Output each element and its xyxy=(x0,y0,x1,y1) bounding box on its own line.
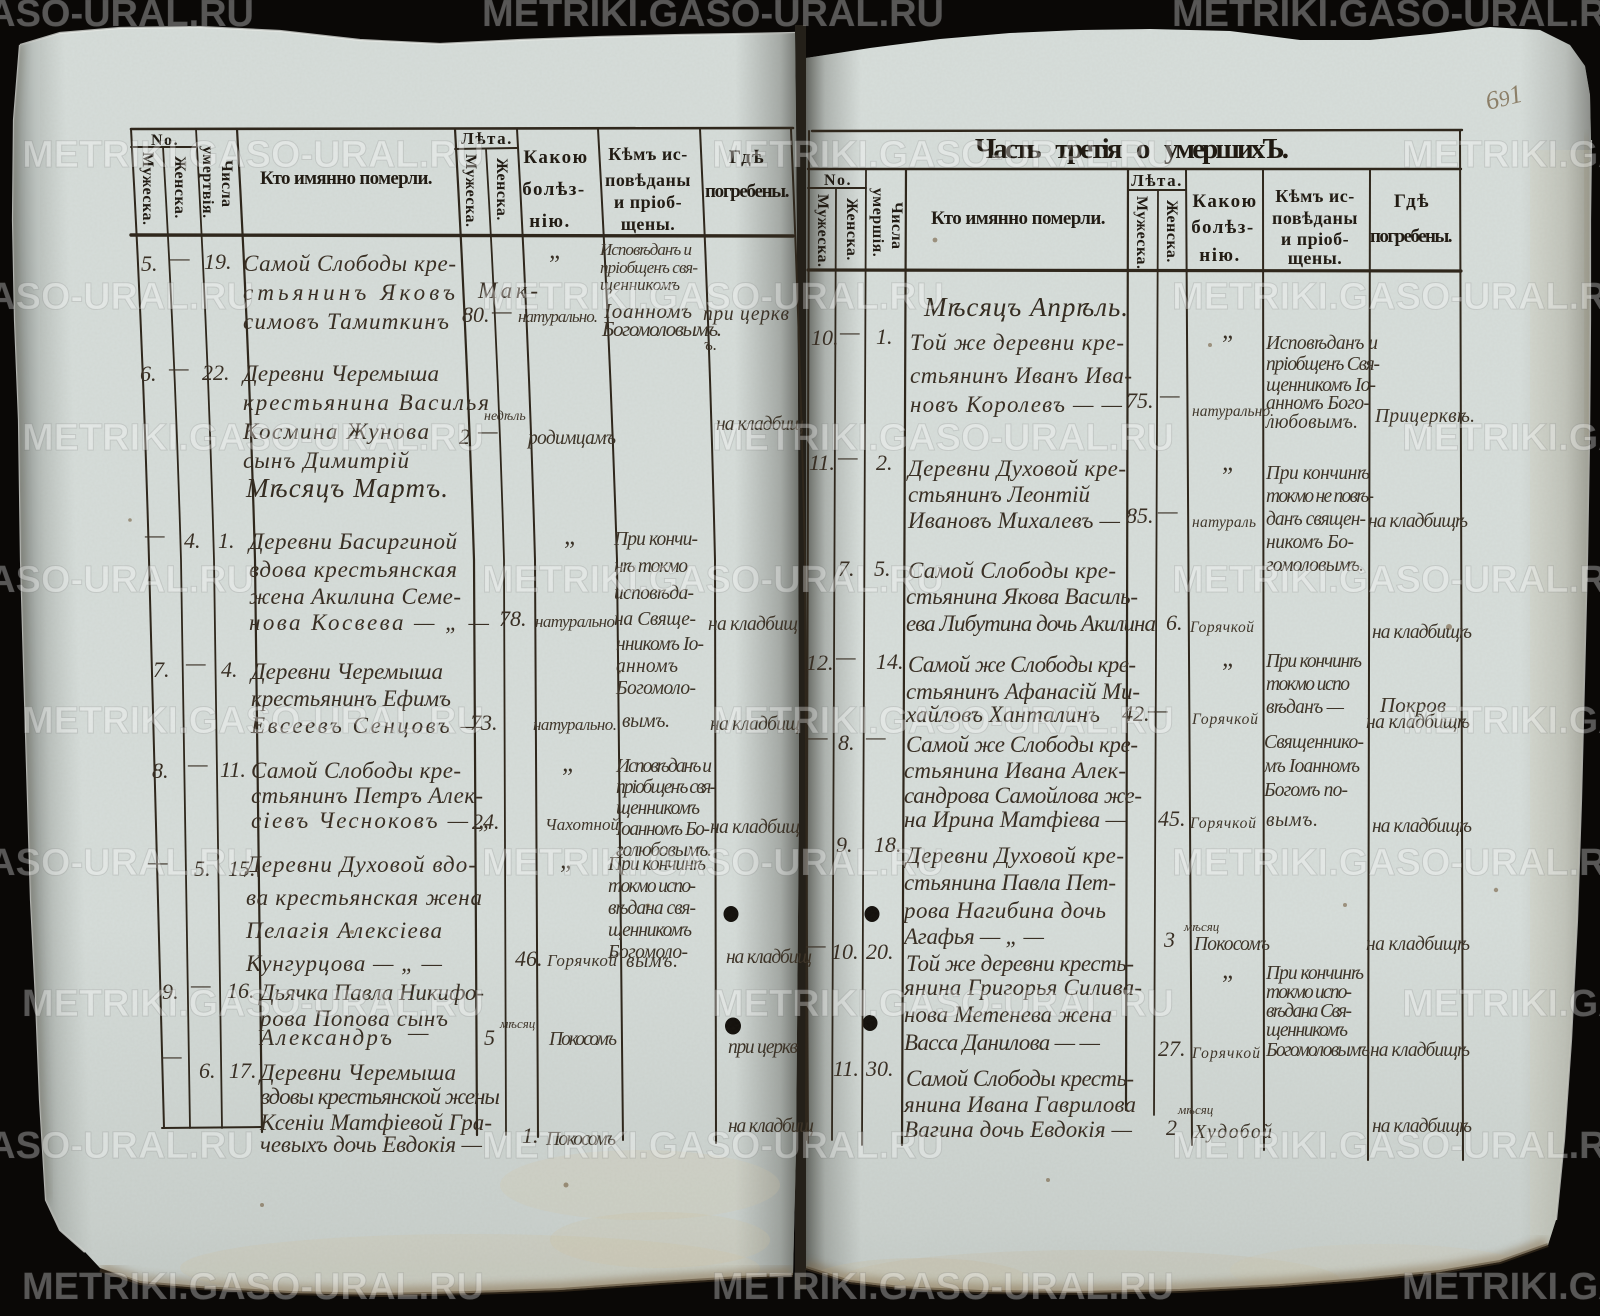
svg-text:вѣданъ —: вѣданъ — xyxy=(1266,697,1345,718)
svg-text:6.: 6. xyxy=(140,361,157,386)
svg-text:—: — xyxy=(187,751,208,776)
svg-text:Числа: Числа xyxy=(888,202,905,250)
svg-text:19.: 19. xyxy=(204,249,232,274)
svg-text:вдовы крестьянской жены: вдовы крестьянской жены xyxy=(260,1084,500,1109)
svg-text:5.: 5. xyxy=(141,251,158,276)
svg-text:46.: 46. xyxy=(515,946,543,971)
svg-text:METRIKI.GASO-URAL.RU: METRIKI.GASO-URAL.RU xyxy=(1172,276,1600,318)
svg-text:—: — xyxy=(1159,382,1180,407)
svg-text:чевыхъ дочь Евдокія —: чевыхъ дочь Евдокія — xyxy=(260,1132,483,1157)
svg-text:на кладбищ: на кладбищ xyxy=(710,817,800,838)
svg-text:при церкв: при церкв xyxy=(728,1037,799,1058)
svg-text:Священнико-: Священнико- xyxy=(1264,732,1364,753)
svg-text:нникомъ Іо-: нникомъ Іо- xyxy=(616,634,704,655)
svg-text:на Ирина Матфіева —: на Ирина Матфіева — xyxy=(904,807,1127,832)
svg-text:повѣданы: повѣданы xyxy=(1272,208,1358,228)
svg-text:Мѣсяцъ Апрѣль.: Мѣсяцъ Апрѣль. xyxy=(923,292,1128,322)
svg-text:78.: 78. xyxy=(499,606,527,631)
svg-text:1.: 1. xyxy=(218,528,235,553)
svg-text:METRIKI.GASO-URAL.RU: METRIKI.GASO-URAL.RU xyxy=(482,1125,944,1167)
svg-text:4.: 4. xyxy=(221,657,238,682)
svg-text:22.: 22. xyxy=(202,360,230,385)
svg-text:—: — xyxy=(1157,498,1178,523)
svg-text:натурально: натурально xyxy=(535,612,615,631)
svg-text:METRIKI.GASO-URAL.RU: METRIKI.GASO-URAL.RU xyxy=(0,276,254,318)
svg-text:Кунгурцова — „ —: Кунгурцова — „ — xyxy=(245,951,443,976)
svg-text:вдова крестьянская: вдова крестьянская xyxy=(249,557,457,582)
svg-text:5: 5 xyxy=(484,1025,495,1050)
svg-text:Женска.: Женска. xyxy=(843,198,860,261)
svg-text:METRIKI.GASO-URAL.RU: METRIKI.GASO-URAL.RU xyxy=(0,1125,254,1167)
svg-text:—: — xyxy=(161,1043,182,1068)
svg-text:„: „ xyxy=(1222,645,1236,672)
svg-text:6.: 6. xyxy=(199,1058,216,1083)
svg-text:родимцамъ: родимцамъ xyxy=(526,428,616,449)
svg-text:погребены.: погребены. xyxy=(705,181,791,202)
svg-text:Исповѣданъ и: Исповѣданъ и xyxy=(615,756,712,777)
svg-text:Какою: Какою xyxy=(1192,191,1257,212)
svg-text:Мужеска.: Мужеска. xyxy=(814,194,831,267)
svg-text:повѣданы: повѣданы xyxy=(605,170,691,190)
svg-text:вѣдана Свя-: вѣдана Свя- xyxy=(1266,1001,1352,1022)
svg-text:Покосомъ: Покосомъ xyxy=(548,1029,617,1050)
svg-text:вѣдана свя-: вѣдана свя- xyxy=(608,898,696,919)
svg-text:стьянинъ Иванъ Ива-: стьянинъ Иванъ Ива- xyxy=(910,363,1132,388)
svg-text:на кладбищ: на кладбищ xyxy=(708,614,798,635)
svg-text:METRIKI.GASO-URAL.RU: METRIKI.GASO-URAL.RU xyxy=(0,842,254,884)
svg-text:Деревни Черемыша: Деревни Черемыша xyxy=(258,1060,456,1085)
svg-text:METRIKI.GASO-URAL.RU: METRIKI.GASO-URAL.RU xyxy=(0,0,254,35)
svg-text:METRIKI.GASO-URAL.RU: METRIKI.GASO-URAL.RU xyxy=(1402,417,1600,459)
svg-text:—: — xyxy=(805,932,826,957)
svg-text:METRIKI.GASO-URAL.RU: METRIKI.GASO-URAL.RU xyxy=(22,700,484,742)
svg-text:пріобщенъ Свя-: пріобщенъ Свя- xyxy=(1266,354,1380,375)
svg-text:нію.: нію. xyxy=(529,211,571,232)
svg-text:Кто имянно померли.: Кто имянно померли. xyxy=(931,208,1107,229)
svg-text:METRIKI.GASO-URAL.RU: METRIKI.GASO-URAL.RU xyxy=(22,417,484,459)
svg-text:METRIKI.GASO-URAL.RU: METRIKI.GASO-URAL.RU xyxy=(712,134,1174,176)
svg-text:никомъ Бо-: никомъ Бо- xyxy=(1266,532,1354,553)
svg-text:6.: 6. xyxy=(1166,610,1183,635)
svg-text:—: — xyxy=(169,245,190,270)
svg-text:1.: 1. xyxy=(876,324,893,349)
svg-text:стьянинъ Петръ Алек-: стьянинъ Петръ Алек- xyxy=(251,783,483,808)
svg-text:анномъ Бого-: анномъ Бого- xyxy=(1266,393,1370,414)
svg-text:METRIKI.GASO-URAL.RU: METRIKI.GASO-URAL.RU xyxy=(482,276,944,318)
svg-text:METRIKI.GASO-URAL.RU: METRIKI.GASO-URAL.RU xyxy=(1172,559,1600,601)
svg-text:27.: 27. xyxy=(1158,1036,1186,1061)
svg-text:—: — xyxy=(144,522,165,547)
svg-text:натураль: натураль xyxy=(1192,514,1256,531)
svg-text:мѣсяц: мѣсяц xyxy=(499,1016,536,1031)
svg-text:на кладбищѣ: на кладбищѣ xyxy=(1372,622,1472,643)
svg-text:„: „ xyxy=(1222,957,1236,984)
svg-text:Іоанномъ Бо-: Іоанномъ Бо- xyxy=(615,819,710,840)
svg-text:Женска.: Женска. xyxy=(1163,200,1180,263)
svg-text:Той же деревни кресть-: Той же деревни кресть- xyxy=(906,951,1134,976)
svg-text:мѣсяц: мѣсяц xyxy=(1177,1102,1214,1117)
svg-text:Богомоло-: Богомоло- xyxy=(615,678,696,699)
svg-text:Деревни Черемыша: Деревни Черемыша xyxy=(249,659,443,684)
svg-text:Мѣсяцъ Мартъ.: Мѣсяцъ Мартъ. xyxy=(245,473,448,503)
svg-text:При кончинѣ: При кончинѣ xyxy=(1265,463,1370,484)
svg-text:Какою: Какою xyxy=(523,147,588,168)
svg-text:8.: 8. xyxy=(152,758,169,783)
svg-text:щенникомъ: щенникомъ xyxy=(608,920,692,941)
svg-text:симовъ Тамиткинъ: симовъ Тамиткинъ xyxy=(243,309,449,334)
svg-text:Мужеска.: Мужеска. xyxy=(1133,196,1150,269)
svg-text:Гдѣ: Гдѣ xyxy=(1394,191,1430,212)
svg-text:METRIKI.GASO-URAL.RU: METRIKI.GASO-URAL.RU xyxy=(1402,700,1600,742)
svg-text:данъ священ-: данъ священ- xyxy=(1266,509,1366,530)
svg-text:нова Косвева — „ —: нова Косвева — „ — xyxy=(249,610,490,635)
svg-text:24.: 24. xyxy=(472,809,500,834)
svg-text:14.: 14. xyxy=(876,649,904,674)
svg-text:METRIKI.GASO-URAL.RU: METRIKI.GASO-URAL.RU xyxy=(482,0,944,35)
svg-text:щены.: щены. xyxy=(621,214,676,234)
svg-text:Той же деревни кре-: Той же деревни кре- xyxy=(910,330,1124,355)
svg-text:METRIKI.GASO-URAL.RU: METRIKI.GASO-URAL.RU xyxy=(1402,983,1600,1025)
svg-text:щенникомъ: щенникомъ xyxy=(616,798,700,819)
svg-text:на кладбищѣ: на кладбищѣ xyxy=(1370,1040,1470,1061)
svg-text:Агафья — „ —: Агафья — „ — xyxy=(902,924,1045,949)
svg-text:щены.: щены. xyxy=(1288,248,1343,268)
svg-text:11.: 11. xyxy=(833,1056,859,1081)
svg-text:новъ Королевъ — —: новъ Королевъ — — xyxy=(910,392,1123,417)
svg-text:METRIKI.GASO-URAL.RU: METRIKI.GASO-URAL.RU xyxy=(1172,0,1600,35)
svg-text:METRIKI.GASO-URAL.RU: METRIKI.GASO-URAL.RU xyxy=(482,842,944,884)
svg-text:10.: 10. xyxy=(811,325,839,350)
svg-text:стьянина Ивана Алек-: стьянина Ивана Алек- xyxy=(904,758,1126,783)
svg-text:вымъ.: вымъ. xyxy=(626,951,678,972)
svg-text:METRIKI.GASO-URAL.RU: METRIKI.GASO-URAL.RU xyxy=(0,559,254,601)
svg-text:„: „ xyxy=(1222,317,1236,344)
svg-text:сіевъ Чесноковъ — „: сіевъ Чесноковъ — „ xyxy=(251,808,491,833)
svg-text:METRIKI.GASO-URAL.RU: METRIKI.GASO-URAL.RU xyxy=(22,134,484,176)
svg-text:Горячкой: Горячкой xyxy=(1191,711,1258,728)
svg-text:токмо испо-: токмо испо- xyxy=(1266,982,1352,1003)
svg-text:3: 3 xyxy=(1163,927,1175,952)
svg-text:и пріоб-: и пріоб- xyxy=(614,192,682,212)
svg-text:погребены.: погребены. xyxy=(1370,226,1454,247)
svg-text:METRIKI.GASO-URAL.RU: METRIKI.GASO-URAL.RU xyxy=(712,700,1174,742)
svg-text:„: „ xyxy=(549,237,563,264)
svg-text:METRIKI.GASO-URAL.RU: METRIKI.GASO-URAL.RU xyxy=(712,1266,1174,1308)
svg-text:Александръ: Александръ xyxy=(258,1025,392,1050)
svg-text:мъ Іоанномъ: мъ Іоанномъ xyxy=(1263,756,1360,777)
svg-text:4.: 4. xyxy=(184,528,201,553)
svg-text:токмо испо: токмо испо xyxy=(1266,674,1350,695)
svg-text:—: — xyxy=(168,355,189,380)
svg-text:анномъ: анномъ xyxy=(616,656,678,677)
svg-text:12.: 12. xyxy=(806,650,834,675)
svg-text:Богомъ по-: Богомъ по- xyxy=(1263,780,1348,801)
svg-text:METRIKI.GASO-URAL.RU: METRIKI.GASO-URAL.RU xyxy=(1172,842,1600,884)
svg-text:При кончи-: При кончи- xyxy=(613,529,698,550)
svg-text:сандрова Самойлова же-: сандрова Самойлова же- xyxy=(904,783,1142,808)
svg-text:Самой Слободы кре-: Самой Слободы кре- xyxy=(251,758,461,783)
svg-text:METRIKI.GASO-URAL.RU: METRIKI.GASO-URAL.RU xyxy=(1402,1266,1600,1308)
svg-text:на кладбищѣ: на кладбищѣ xyxy=(1366,934,1470,955)
svg-text:натурально.: натурально. xyxy=(533,715,617,734)
svg-text:Покосомъ: Покосомъ xyxy=(1193,934,1270,955)
svg-text:и пріоб-: и пріоб- xyxy=(1281,229,1349,249)
svg-text:—: — xyxy=(839,319,860,344)
svg-text:любовымъ.: любовымъ. xyxy=(1265,412,1358,433)
svg-text:Горячкой: Горячкой xyxy=(1189,815,1256,832)
svg-text:METRIKI.GASO-URAL.RU: METRIKI.GASO-URAL.RU xyxy=(482,559,944,601)
svg-text:7.: 7. xyxy=(153,657,170,682)
svg-text:Самой же Слободы кре-: Самой же Слободы кре- xyxy=(908,652,1136,677)
svg-text:рова Нагибина дочь: рова Нагибина дочь xyxy=(902,898,1106,923)
svg-text:болѣз-: болѣз- xyxy=(1191,217,1255,238)
svg-text:Деревни Басиргиной: Деревни Басиргиной xyxy=(247,529,458,554)
svg-text:20.: 20. xyxy=(866,939,894,964)
svg-text:Женска.: Женска. xyxy=(493,158,510,221)
svg-text:17.: 17. xyxy=(229,1058,257,1083)
svg-text:на кладбищѣ: на кладбищѣ xyxy=(1372,816,1472,837)
svg-text:токмо не повѣ-: токмо не повѣ- xyxy=(1266,486,1374,507)
svg-text:METRIKI.GASO-URAL.RU: METRIKI.GASO-URAL.RU xyxy=(22,983,484,1025)
svg-text:Богомоловымъ: Богомоловымъ xyxy=(1265,1040,1370,1061)
svg-text:При кончинѣ: При кончинѣ xyxy=(1265,651,1362,672)
svg-text:Исповѣданъ и: Исповѣданъ и xyxy=(1265,333,1378,354)
svg-text:„: „ xyxy=(562,750,576,777)
svg-text:на кладбищѣ: на кладбищѣ xyxy=(1368,511,1468,532)
svg-text:мѣсяц: мѣсяц xyxy=(1183,919,1220,934)
svg-text:Исповѣданъ и: Исповѣданъ и xyxy=(599,240,692,259)
svg-text:ева Либутина дочь Акилина: ева Либутина дочь Акилина xyxy=(906,611,1156,636)
svg-text:натурально.: натурально. xyxy=(1192,403,1274,420)
svg-text:METRIKI.GASO-URAL.RU: METRIKI.GASO-URAL.RU xyxy=(22,1266,484,1308)
svg-text:Самой Слободы кресть-: Самой Слободы кресть- xyxy=(906,1066,1134,1091)
svg-text:Ивановъ Михалевъ —: Ивановъ Михалевъ — xyxy=(907,508,1121,533)
svg-text:30.: 30. xyxy=(865,1056,894,1081)
svg-text:—: — xyxy=(185,650,206,675)
svg-text:Деревни Черемыша: Деревни Черемыша xyxy=(241,361,439,386)
svg-text:При кончинѣ: При кончинѣ xyxy=(1265,963,1364,984)
svg-text:вымъ.: вымъ. xyxy=(622,711,670,732)
svg-text:Пелагія Алексіева: Пелагія Алексіева xyxy=(245,918,442,943)
svg-text:янина Ивана Гаврилова: янина Ивана Гаврилова xyxy=(903,1092,1136,1117)
svg-text:„: „ xyxy=(564,523,578,550)
svg-text:Деревни Духовой вдо-: Деревни Духовой вдо- xyxy=(244,852,476,877)
svg-text:METRIKI.GASO-URAL.RU: METRIKI.GASO-URAL.RU xyxy=(712,983,1174,1025)
svg-text:умершія.: умершія. xyxy=(869,188,886,257)
svg-text:Горячкой: Горячкой xyxy=(1191,1045,1260,1062)
svg-text:стьянинъ Леонтій: стьянинъ Леонтій xyxy=(908,482,1091,507)
svg-text:11.: 11. xyxy=(220,757,246,782)
svg-text:75.: 75. xyxy=(1126,388,1154,413)
svg-text:METRIKI.GASO-URAL.RU: METRIKI.GASO-URAL.RU xyxy=(1172,1125,1600,1167)
svg-text:Чахотной: Чахотной xyxy=(545,815,620,834)
svg-text:—: — xyxy=(835,644,856,669)
svg-text:Самой Слободы кре-: Самой Слободы кре- xyxy=(243,251,456,276)
svg-text:ъ.: ъ. xyxy=(704,335,717,354)
svg-text:Кѣмъ ис-: Кѣмъ ис- xyxy=(1275,186,1354,206)
svg-text:Кѣмъ ис-: Кѣмъ ис- xyxy=(608,144,687,164)
svg-text:на кладбищ: на кладбищ xyxy=(726,947,812,968)
svg-text:10.: 10. xyxy=(831,939,859,964)
svg-text:на Свяще-: на Свяще- xyxy=(614,609,696,630)
svg-text:ва крестьянская жена: ва крестьянская жена xyxy=(246,885,482,910)
svg-text:болѣз-: болѣз- xyxy=(522,179,586,200)
svg-text:Васса Данилова — —: Васса Данилова — — xyxy=(904,1030,1101,1055)
svg-text:Горячкой: Горячкой xyxy=(1189,619,1254,636)
svg-text:METRIKI.GASO-URAL.RU: METRIKI.GASO-URAL.RU xyxy=(1402,134,1600,176)
svg-text:85.: 85. xyxy=(1126,503,1154,528)
svg-text:Горячкой: Горячкой xyxy=(546,951,618,970)
svg-text:жена Акилина Семе-: жена Акилина Семе- xyxy=(249,584,461,609)
svg-text:щенникомъ: щенникомъ xyxy=(1266,1020,1348,1041)
svg-text:45.: 45. xyxy=(1158,806,1186,831)
svg-text:нію.: нію. xyxy=(1199,245,1241,266)
svg-text:вымъ.: вымъ. xyxy=(1266,810,1318,831)
svg-text:Деревни Духовой кре-: Деревни Духовой кре- xyxy=(906,456,1126,481)
svg-text:„: „ xyxy=(1222,449,1236,476)
svg-text:пріобщенъ свя-: пріобщенъ свя- xyxy=(616,777,716,798)
svg-text:METRIKI.GASO-URAL.RU: METRIKI.GASO-URAL.RU xyxy=(712,417,1174,459)
